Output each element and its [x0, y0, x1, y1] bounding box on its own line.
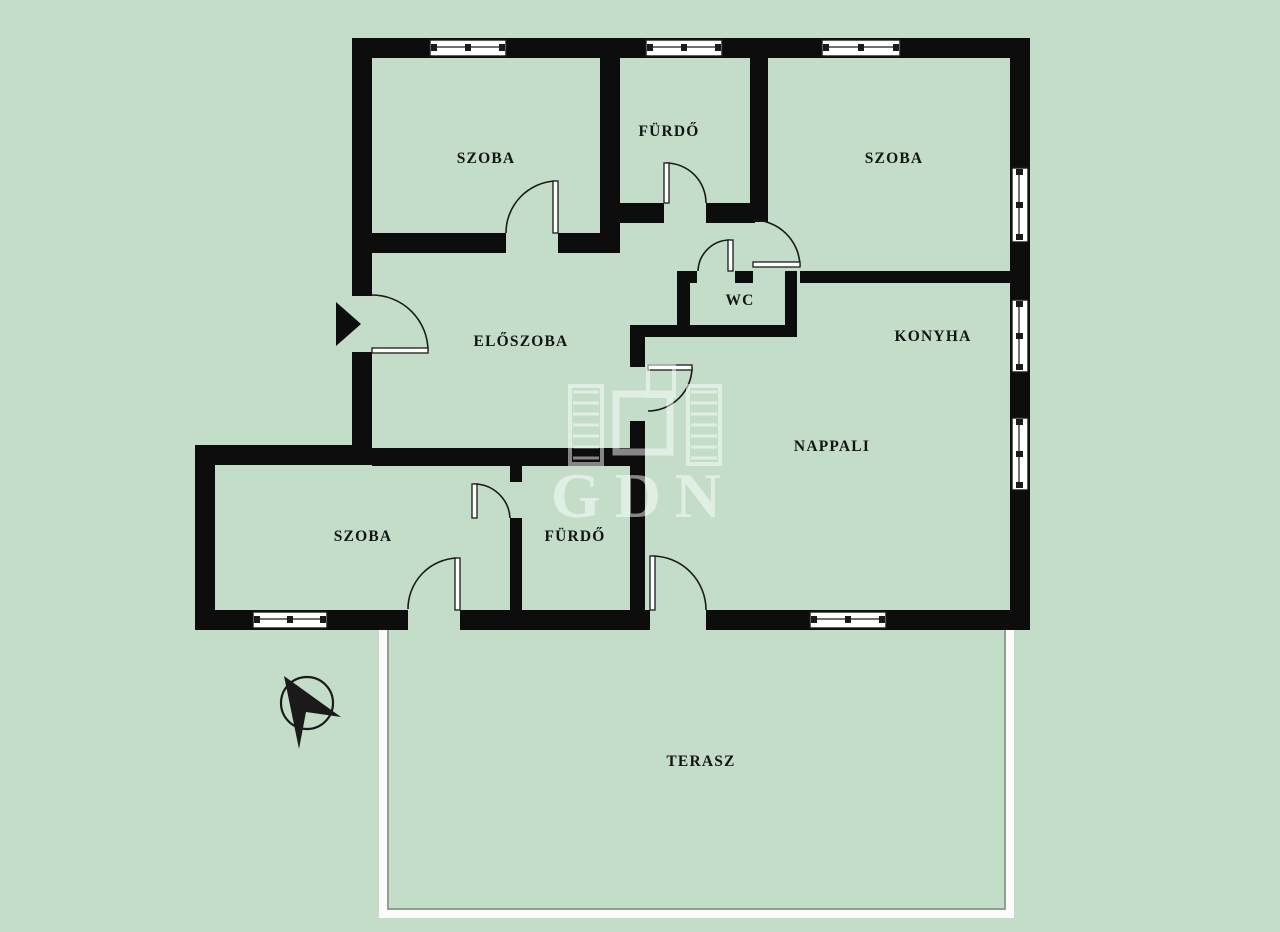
wall — [195, 445, 215, 630]
window-tick — [431, 44, 437, 51]
wall — [800, 271, 1010, 283]
window-tick — [254, 616, 260, 623]
door-opening — [408, 610, 460, 630]
window-tick — [1016, 364, 1023, 370]
window-tick — [879, 616, 885, 623]
window-tick — [1016, 482, 1023, 488]
window-tick — [715, 44, 721, 51]
window-tick — [1016, 234, 1023, 240]
window-tick — [1016, 301, 1023, 307]
window-tick — [1016, 202, 1023, 208]
room-label-furdo-2: FÜRDŐ — [544, 528, 605, 545]
door-opening — [510, 482, 522, 518]
wc-door-leaf — [728, 240, 733, 271]
nappali-terasz-door-leaf — [650, 556, 655, 610]
window-tick — [465, 44, 471, 51]
window-tick — [893, 44, 899, 51]
konyha-door-leaf — [753, 262, 800, 267]
window-tick — [1016, 333, 1023, 339]
room-label-szoba-2: SZOBA — [865, 150, 924, 167]
room-label-terasz: TERASZ — [666, 753, 735, 770]
window-tick — [499, 44, 505, 51]
gdn-watermark: GDN — [551, 366, 735, 531]
door-opening — [506, 233, 558, 253]
room-label-furdo-1: FÜRDŐ — [638, 123, 699, 140]
window-tick — [858, 44, 864, 51]
szoba1-door-leaf — [553, 181, 558, 233]
door-opening — [650, 610, 706, 630]
wall — [630, 325, 797, 337]
window-tick — [647, 44, 653, 51]
wall — [510, 448, 522, 482]
window-tick — [845, 616, 851, 623]
wall — [510, 518, 522, 613]
wall — [600, 58, 620, 253]
floor-plan: GDNSZOBAFÜRDŐSZOBAWCELŐSZOBAKONYHANAPPAL… — [0, 0, 1280, 932]
furdo2-door-leaf — [472, 484, 477, 518]
window-tick — [811, 616, 817, 623]
room-label-konyha: KONYHA — [895, 328, 972, 345]
wall — [352, 38, 372, 465]
window-tick — [1016, 169, 1023, 175]
window-tick — [287, 616, 293, 623]
window-tick — [320, 616, 326, 623]
room-label-eloszoba: ELŐSZOBA — [474, 333, 569, 350]
watermark-text: GDN — [551, 460, 735, 531]
room-label-nappali: NAPPALI — [794, 438, 870, 455]
floor-plan-canvas: GDNSZOBAFÜRDŐSZOBAWCELŐSZOBAKONYHANAPPAL… — [0, 0, 1280, 932]
room-label-szoba-3: SZOBA — [334, 528, 393, 545]
door-opening — [697, 271, 735, 283]
window-tick — [681, 44, 687, 51]
window-tick — [1016, 419, 1023, 425]
wall — [735, 271, 753, 283]
wall — [372, 233, 620, 253]
window-tick — [823, 44, 829, 51]
szoba3-terasz-door-leaf — [455, 558, 460, 610]
window-tick — [1016, 451, 1023, 457]
wall — [630, 325, 645, 367]
wall — [195, 445, 372, 465]
entrance-door-leaf — [372, 348, 428, 353]
room-label-wc: WC — [725, 292, 754, 309]
door-opening — [664, 203, 706, 223]
wall — [750, 58, 768, 222]
furdo1-door-leaf — [664, 163, 669, 203]
room-label-szoba-1: SZOBA — [457, 150, 516, 167]
